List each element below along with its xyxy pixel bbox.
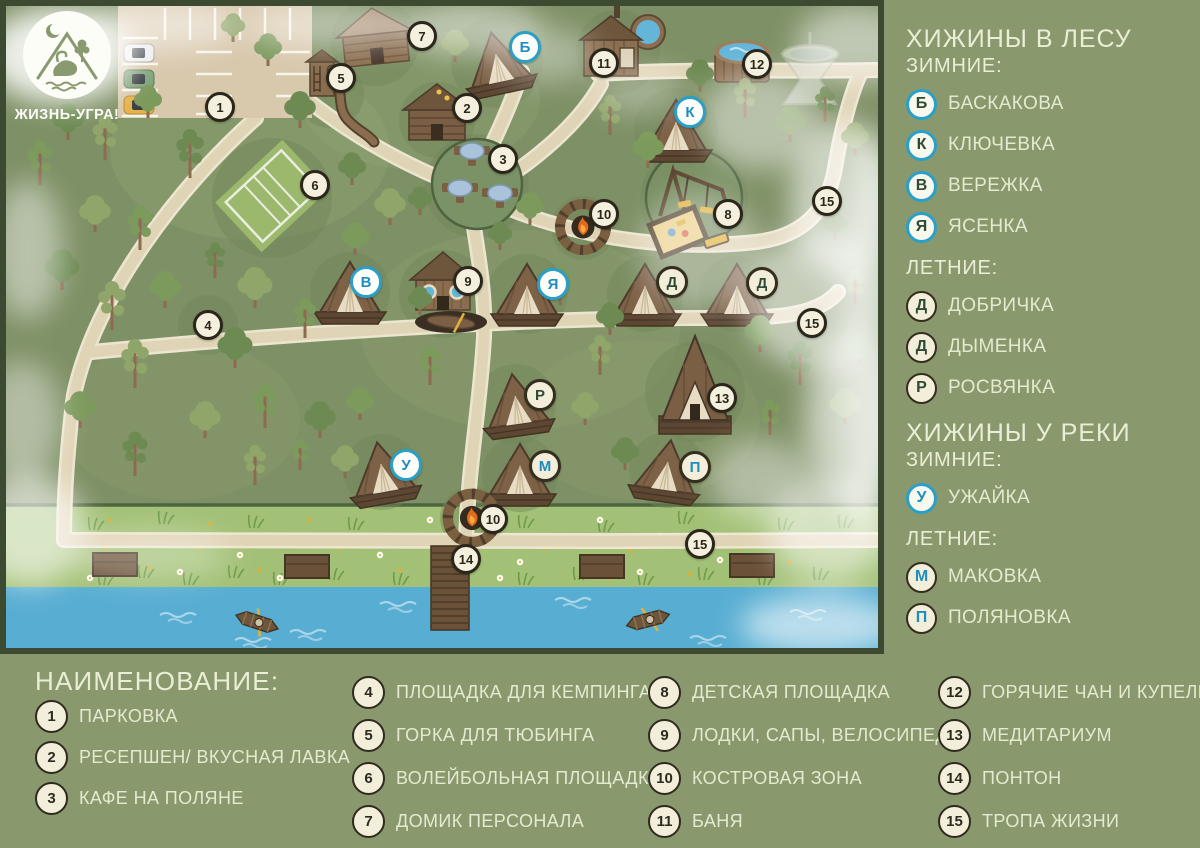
legend-number-badge: 5 [352, 719, 385, 752]
hut-legend: ХИЖИНЫ В ЛЕСУЗИМНИЕ:ББАСКАКОВАККЛЮЧЕВКАВ… [884, 0, 1200, 654]
legend-number-badge: 4 [352, 676, 385, 709]
legend-label: БАНЯ [692, 811, 743, 832]
bench [580, 555, 624, 578]
hut-name: ВЕРЕЖКА [948, 175, 1043, 197]
legend-item: 5ГОРКА ДЛЯ ТЮБИНГА [352, 719, 661, 752]
legend-column: 8ДЕТСКАЯ ПЛОЩАДКА9ЛОДКИ, САПЫ, ВЕЛОСИПЕД… [648, 676, 964, 838]
hut-letter-badge: М [906, 562, 937, 593]
hut-letter-badge: К [906, 130, 937, 161]
hut-legend-item: РРОСВЯНКА [906, 372, 1200, 404]
map-marker-15[interactable]: 15 [685, 529, 715, 559]
legend-item: 6ВОЛЕЙБОЛЬНАЯ ПЛОЩАДКА [352, 762, 661, 795]
hut-legend-item: ЯЯСЕНКА [906, 211, 1200, 243]
hut-name: КЛЮЧЕВКА [948, 134, 1055, 156]
legend-label: ГОРКА ДЛЯ ТЮБИНГА [396, 725, 595, 746]
logo: ЖИЗНЬ-УГРА! [12, 10, 122, 123]
map-marker-10[interactable]: 10 [478, 504, 508, 534]
map-marker-2[interactable]: 2 [452, 93, 482, 123]
legend-item: 11БАНЯ [648, 805, 964, 838]
hut-legend-item: ММАКОВКА [906, 561, 1200, 593]
map-marker-15[interactable]: 15 [812, 186, 842, 216]
hut-name: ЯСЕНКА [948, 216, 1028, 238]
legend-item: 2РЕСЕПШЕН/ ВКУСНАЯ ЛАВКА [35, 741, 350, 774]
hut-legend-section: ХИЖИНЫ В ЛЕСУЗИМНИЕ:ББАСКАКОВАККЛЮЧЕВКАВ… [906, 26, 1200, 243]
map-marker-4[interactable]: 4 [193, 310, 223, 340]
legend-label: ТРОПА ЖИЗНИ [982, 811, 1119, 832]
legend-number-badge: 3 [35, 782, 68, 815]
map-marker-Д[interactable]: Д [746, 267, 778, 299]
hut-legend-item: ББАСКАКОВА [906, 88, 1200, 120]
map-marker-7[interactable]: 7 [407, 21, 437, 51]
legend-label: ПАРКОВКА [79, 706, 178, 727]
hut-letter-badge: Д [906, 291, 937, 322]
map-panel [0, 0, 884, 654]
legend-number-badge: 6 [352, 762, 385, 795]
legend-number-badge: 13 [938, 719, 971, 752]
hut-letter-badge: Я [906, 212, 937, 243]
hut-legend-section: ХИЖИНЫ У РЕКИЗИМНИЕ:УУЖАЙКА [906, 420, 1200, 514]
legend-label: РЕСЕПШЕН/ ВКУСНАЯ ЛАВКА [79, 747, 350, 768]
legend-number-badge: 9 [648, 719, 681, 752]
map-marker-9[interactable]: 9 [453, 266, 483, 296]
legend-item: 3КАФЕ НА ПОЛЯНЕ [35, 782, 350, 815]
legend-number-badge: 12 [938, 676, 971, 709]
hut-legend-section: ЛЕТНИЕ:ДДОБРИЧКАДДЫМЕНКАРРОСВЯНКА [906, 257, 1200, 404]
legend-number-badge: 2 [35, 741, 68, 774]
hut-legend-item: УУЖАЙКА [906, 482, 1200, 514]
legend-item: 10КОСТРОВАЯ ЗОНА [648, 762, 964, 795]
hut-legend-item: ВВЕРЕЖКА [906, 170, 1200, 202]
legend-label: ЛОДКИ, САПЫ, ВЕЛОСИПЕДЫ [692, 725, 964, 746]
hut-legend-item: ДДОБРИЧКА [906, 290, 1200, 322]
hut-legend-section: ЛЕТНИЕ:ММАКОВКАППОЛЯНОВКА [906, 528, 1200, 634]
legend-label: ДОМИК ПЕРСОНАЛА [396, 811, 584, 832]
map-marker-6[interactable]: 6 [300, 170, 330, 200]
legend-number-badge: 14 [938, 762, 971, 795]
map-marker-12[interactable]: 12 [742, 49, 772, 79]
map-marker-Я[interactable]: Я [537, 268, 569, 300]
hut-letter-badge: Р [906, 373, 937, 404]
legend-title: НАИМЕНОВАНИЕ: [35, 666, 279, 697]
map-marker-У[interactable]: У [390, 449, 422, 481]
hut-name: ПОЛЯНОВКА [948, 607, 1071, 629]
hut-name: ДОБРИЧКА [948, 295, 1054, 317]
logo-emblem [22, 10, 112, 100]
hut-letter-badge: Д [906, 332, 937, 363]
hut-letter-badge: Б [906, 89, 937, 120]
hut-name: РОСВЯНКА [948, 377, 1055, 399]
hut-name: БАСКАКОВА [948, 93, 1064, 115]
legend-label: МЕДИТАРИУМ [982, 725, 1112, 746]
hut-legend-item: ДДЫМЕНКА [906, 331, 1200, 363]
hut-legend-subheading: ЗИМНИЕ: [906, 449, 1200, 472]
bench [285, 555, 329, 578]
legend-label: КОСТРОВАЯ ЗОНА [692, 768, 862, 789]
hut-letter-badge: П [906, 603, 937, 634]
legend-number-badge: 11 [648, 805, 681, 838]
map-marker-1[interactable]: 1 [205, 92, 235, 122]
map-marker-3[interactable]: 3 [488, 144, 518, 174]
hut-legend-heading: ХИЖИНЫ У РЕКИ [906, 420, 1200, 447]
bench [730, 554, 774, 577]
legend-column: 4ПЛОЩАДКА ДЛЯ КЕМПИНГА5ГОРКА ДЛЯ ТЮБИНГА… [352, 676, 661, 838]
legend-number-badge: 8 [648, 676, 681, 709]
legend-label: ДЕТСКАЯ ПЛОЩАДКА [692, 682, 890, 703]
hut-legend-subheading: ЗИМНИЕ: [906, 55, 1200, 78]
legend-number-badge: 1 [35, 700, 68, 733]
map-marker-Б[interactable]: Б [509, 31, 541, 63]
legend-item: 14ПОНТОН [938, 762, 1200, 795]
legend-item: 8ДЕТСКАЯ ПЛОЩАДКА [648, 676, 964, 709]
legend-item: 9ЛОДКИ, САПЫ, ВЕЛОСИПЕДЫ [648, 719, 964, 752]
legend-item: 4ПЛОЩАДКА ДЛЯ КЕМПИНГА [352, 676, 661, 709]
legend-label: ПОНТОН [982, 768, 1062, 789]
map-marker-14[interactable]: 14 [451, 544, 481, 574]
legend-number-badge: 15 [938, 805, 971, 838]
hut-letter-badge: В [906, 171, 937, 202]
legend: НАИМЕНОВАНИЕ: 1ПАРКОВКА2РЕСЕПШЕН/ ВКУСНА… [0, 654, 1200, 848]
hut-legend-subheading: ЛЕТНИЕ: [906, 257, 1200, 280]
map-marker-5[interactable]: 5 [326, 63, 356, 93]
hut-name: МАКОВКА [948, 566, 1041, 588]
map-marker-13[interactable]: 13 [707, 383, 737, 413]
map-marker-П[interactable]: П [679, 451, 711, 483]
legend-item: 1ПАРКОВКА [35, 700, 350, 733]
legend-item: 15ТРОПА ЖИЗНИ [938, 805, 1200, 838]
legend-label: ПЛОЩАДКА ДЛЯ КЕМПИНГА [396, 682, 651, 703]
map-marker-Д[interactable]: Д [656, 266, 688, 298]
legend-column: 12ГОРЯЧИЕ ЧАН И КУПЕЛЬ13МЕДИТАРИУМ14ПОНТ… [938, 676, 1200, 838]
hut-letter-badge: У [906, 483, 937, 514]
map-marker-15[interactable]: 15 [797, 308, 827, 338]
map-art [6, 6, 878, 648]
brand-name: ЖИЗНЬ-УГРА! [12, 107, 122, 123]
legend-number-badge: 7 [352, 805, 385, 838]
camp-map-poster: ЖИЗНЬ-УГРА! 123456789101011121314151515Б… [0, 0, 1200, 848]
hut-legend-heading: ХИЖИНЫ В ЛЕСУ [906, 26, 1200, 53]
map-marker-В[interactable]: В [350, 266, 382, 298]
legend-label: ГОРЯЧИЕ ЧАН И КУПЕЛЬ [982, 682, 1200, 703]
hut-name: УЖАЙКА [948, 487, 1030, 509]
legend-item: 7ДОМИК ПЕРСОНАЛА [352, 805, 661, 838]
legend-number-badge: 10 [648, 762, 681, 795]
map-marker-К[interactable]: К [674, 96, 706, 128]
hut-name: ДЫМЕНКА [948, 336, 1046, 358]
hut-legend-item: ККЛЮЧЕВКА [906, 129, 1200, 161]
map-marker-М[interactable]: М [529, 450, 561, 482]
legend-item: 13МЕДИТАРИУМ [938, 719, 1200, 752]
map-marker-11[interactable]: 11 [589, 48, 619, 78]
legend-label: КАФЕ НА ПОЛЯНЕ [79, 788, 244, 809]
legend-label: ВОЛЕЙБОЛЬНАЯ ПЛОЩАДКА [396, 768, 661, 789]
map-marker-8[interactable]: 8 [713, 199, 743, 229]
legend-column: 1ПАРКОВКА2РЕСЕПШЕН/ ВКУСНАЯ ЛАВКА3КАФЕ Н… [35, 700, 350, 815]
legend-item: 12ГОРЯЧИЕ ЧАН И КУПЕЛЬ [938, 676, 1200, 709]
map-marker-10[interactable]: 10 [589, 199, 619, 229]
hut-legend-item: ППОЛЯНОВКА [906, 602, 1200, 634]
map-marker-Р[interactable]: Р [524, 379, 556, 411]
hut-legend-subheading: ЛЕТНИЕ: [906, 528, 1200, 551]
